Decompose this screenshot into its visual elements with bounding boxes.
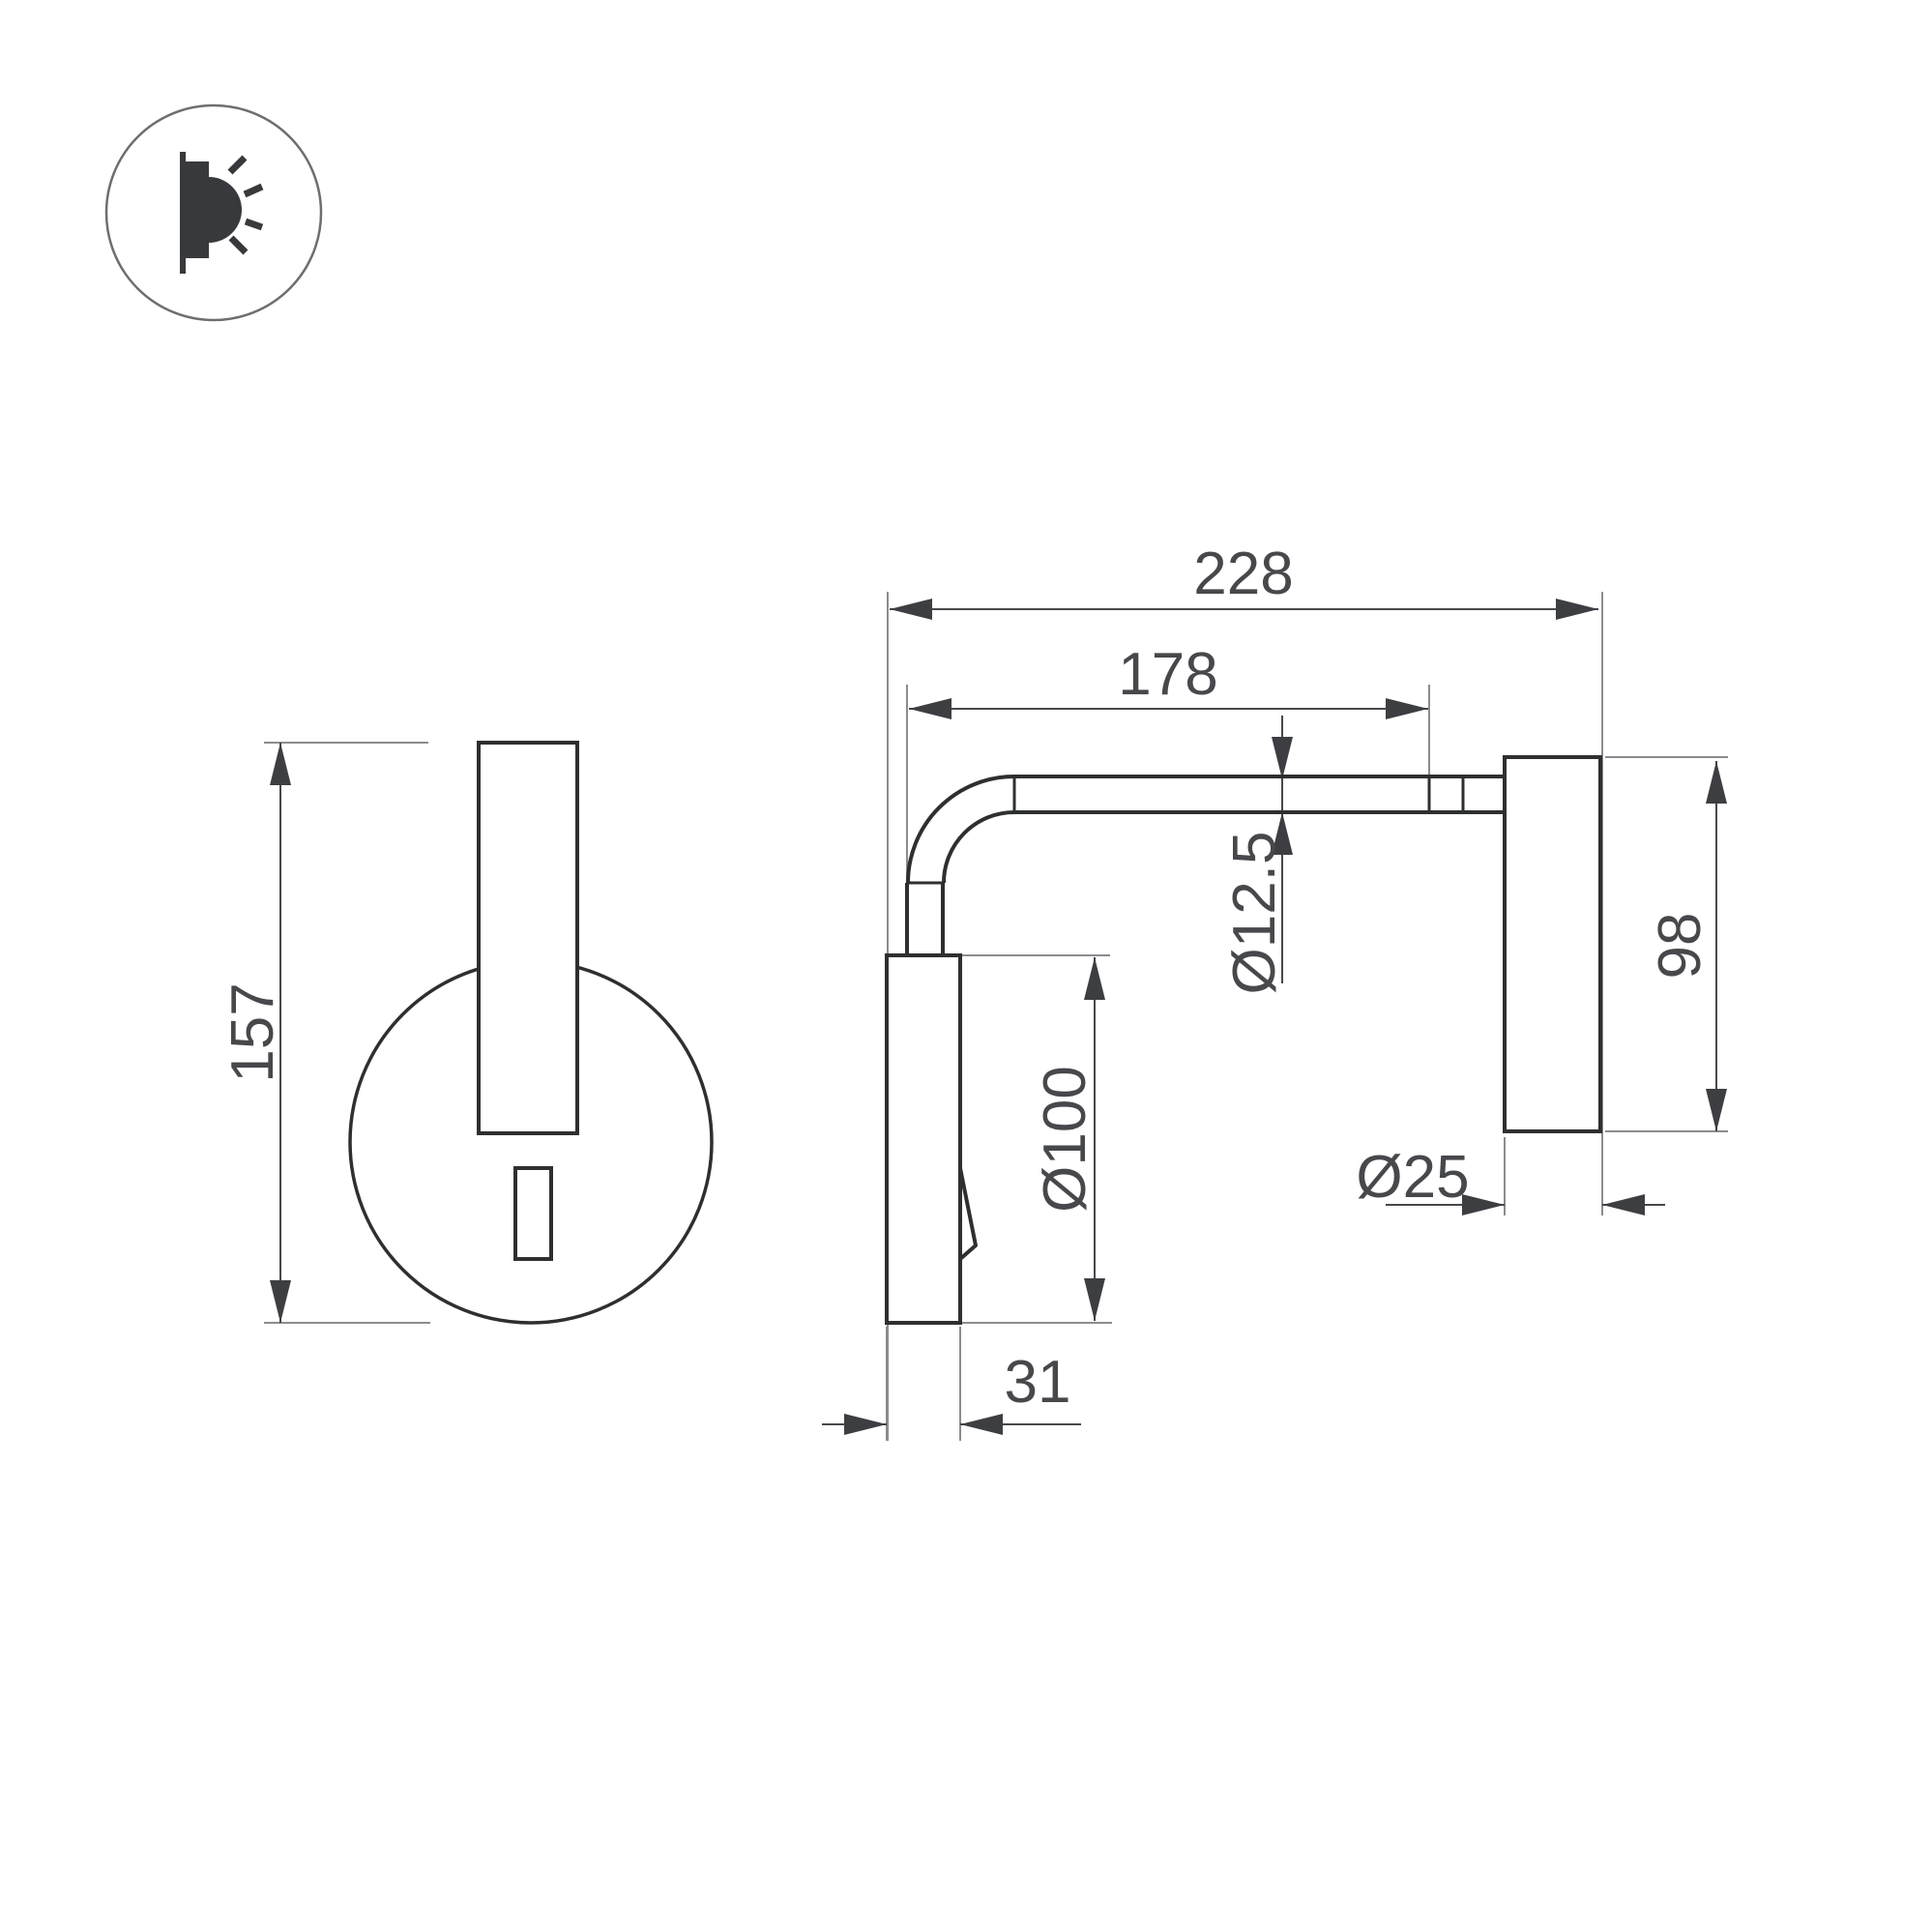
dim-98-arrow-down — [1706, 1089, 1727, 1131]
front-view: 157 — [220, 743, 712, 1323]
dim-178-arrow-right — [1386, 698, 1428, 719]
dim-tube-arrow-down — [1272, 737, 1293, 779]
dim-31-arrow-right — [960, 1414, 1003, 1435]
arm-bend-outer — [908, 776, 1014, 883]
dim-157-arrow-up — [270, 743, 291, 785]
dim-178-label: 178 — [1118, 641, 1217, 708]
wall-washer-light-icon — [106, 105, 321, 320]
dim-98-label: 98 — [1647, 913, 1713, 980]
dim-base-dia-arrow-down — [1084, 1278, 1105, 1321]
dim-31-arrow-left — [844, 1414, 887, 1435]
reading-head — [1505, 757, 1600, 1131]
dim-157-arrow-down — [270, 1280, 291, 1323]
icon-light-halfdisc — [209, 177, 242, 243]
dim-31-label: 31 — [1005, 1349, 1071, 1416]
dim-base-dia-arrow-up — [1084, 957, 1105, 1000]
base-body — [887, 955, 960, 1323]
dim-178-arrow-left — [909, 698, 951, 719]
icon-lamp-panel — [186, 161, 209, 258]
dim-head-dia-label: Ø25 — [1356, 1144, 1469, 1211]
dim-base-dia-label: Ø100 — [1032, 1066, 1098, 1213]
dim-228-label: 228 — [1193, 541, 1293, 607]
dim-head-dia-arrow-right — [1602, 1194, 1645, 1215]
dimension-drawing-page: 157 228 — [0, 0, 1932, 1932]
front-light-bar — [479, 743, 577, 1133]
dim-98-arrow-up — [1706, 761, 1727, 804]
arm-bend-inner — [944, 812, 1014, 883]
dim-228-arrow-left — [890, 599, 932, 620]
switch-lever — [960, 1168, 976, 1259]
icon-wall-line — [180, 152, 186, 274]
technical-drawing: 157 228 — [0, 0, 1932, 1932]
front-switch-window — [515, 1168, 551, 1259]
dim-tube-label: Ø12.5 — [1221, 832, 1288, 995]
dim-157-label: 157 — [220, 982, 286, 1082]
dim-228-arrow-right — [1556, 599, 1598, 620]
